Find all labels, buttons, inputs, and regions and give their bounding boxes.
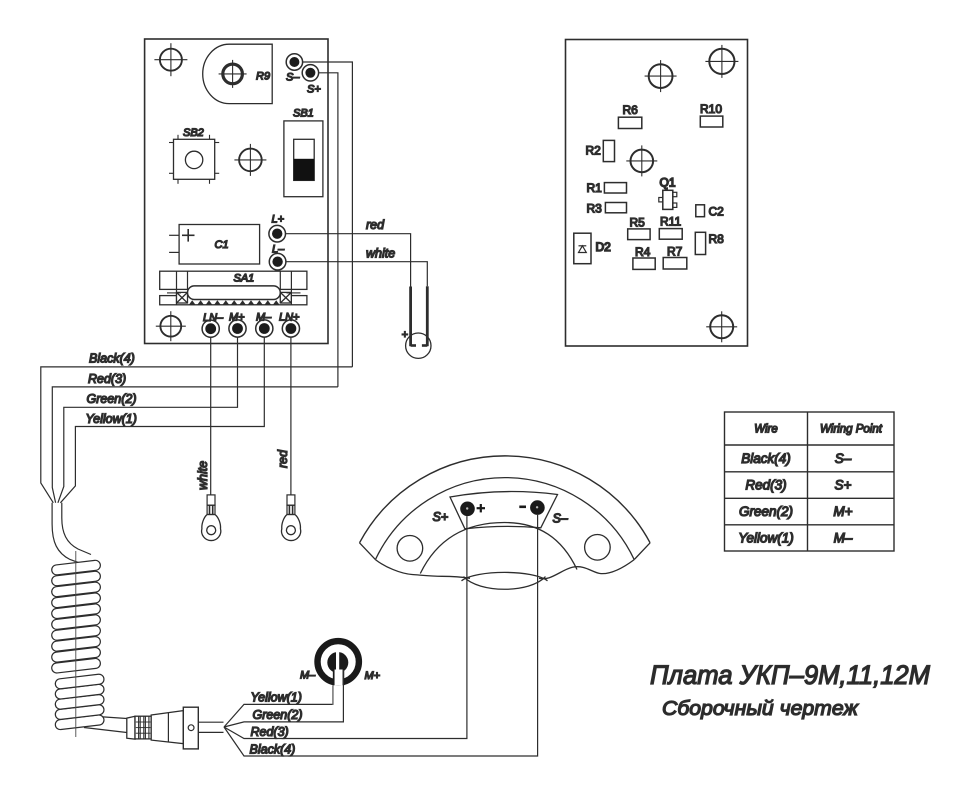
- svg-text:SA1: SA1: [234, 273, 255, 285]
- svg-text:R7: R7: [667, 245, 683, 259]
- svg-text:S–: S–: [835, 451, 852, 466]
- svg-text:R11: R11: [660, 215, 681, 229]
- svg-text:Yellow(1): Yellow(1): [738, 531, 794, 546]
- svg-text:R3: R3: [587, 202, 603, 216]
- svg-text:Yellow(1): Yellow(1): [251, 691, 302, 705]
- svg-text:R1: R1: [587, 181, 603, 195]
- svg-text:R5: R5: [630, 216, 646, 230]
- svg-text:red: red: [276, 449, 290, 468]
- svg-text:Black(4): Black(4): [741, 451, 791, 466]
- svg-text:R10: R10: [700, 102, 722, 116]
- svg-text:S+: S+: [307, 84, 321, 96]
- svg-text:red: red: [366, 218, 385, 232]
- svg-text:Плата УКП–9М,11,12М: Плата УКП–9М,11,12М: [650, 660, 931, 690]
- svg-text:S+: S+: [433, 510, 449, 524]
- svg-text:R4: R4: [635, 245, 651, 259]
- svg-text:M+: M+: [229, 312, 245, 324]
- svg-text:Red(3): Red(3): [88, 372, 126, 386]
- svg-text:Black(4): Black(4): [250, 742, 296, 756]
- svg-text:R8: R8: [709, 232, 725, 246]
- svg-text:M–: M–: [834, 531, 853, 546]
- svg-text:Red(3): Red(3): [745, 478, 786, 493]
- svg-text:R6: R6: [623, 103, 639, 117]
- svg-text:Red(3): Red(3): [251, 725, 289, 739]
- svg-text:white: white: [196, 461, 210, 490]
- svg-text:M+: M+: [365, 670, 381, 682]
- svg-text:Yellow(1): Yellow(1): [86, 412, 137, 426]
- svg-text:L–: L–: [272, 244, 285, 256]
- svg-text:C1: C1: [215, 239, 229, 251]
- svg-text:D2: D2: [596, 240, 612, 254]
- svg-text:LN+: LN+: [279, 312, 300, 324]
- svg-text:SB2: SB2: [183, 127, 204, 139]
- svg-text:M–: M–: [300, 670, 316, 682]
- svg-text:R9: R9: [256, 71, 270, 83]
- svg-text:M+: M+: [833, 504, 852, 519]
- svg-text:S+: S+: [835, 478, 852, 493]
- svg-text:R2: R2: [586, 144, 602, 158]
- svg-text:S–: S–: [553, 512, 569, 526]
- svg-text:S–: S–: [286, 72, 300, 84]
- svg-text:Q1: Q1: [660, 176, 676, 190]
- svg-text:M–: M–: [256, 312, 272, 324]
- svg-text:Wiring Point: Wiring Point: [820, 424, 883, 436]
- svg-text:LN–: LN–: [203, 312, 224, 324]
- svg-text:C2: C2: [709, 205, 725, 219]
- svg-text:Сборочный чертеж: Сборочный чертеж: [662, 697, 859, 720]
- svg-text:white: white: [366, 247, 395, 261]
- svg-text:SB1: SB1: [293, 108, 314, 120]
- svg-text:+: +: [402, 329, 409, 341]
- svg-text:Wire: Wire: [754, 424, 778, 436]
- svg-text:Green(2): Green(2): [87, 392, 137, 406]
- svg-text:Black(4): Black(4): [89, 352, 135, 366]
- svg-text:Green(2): Green(2): [253, 708, 303, 722]
- svg-text:Green(2): Green(2): [739, 504, 793, 519]
- svg-text:L+: L+: [272, 214, 285, 226]
